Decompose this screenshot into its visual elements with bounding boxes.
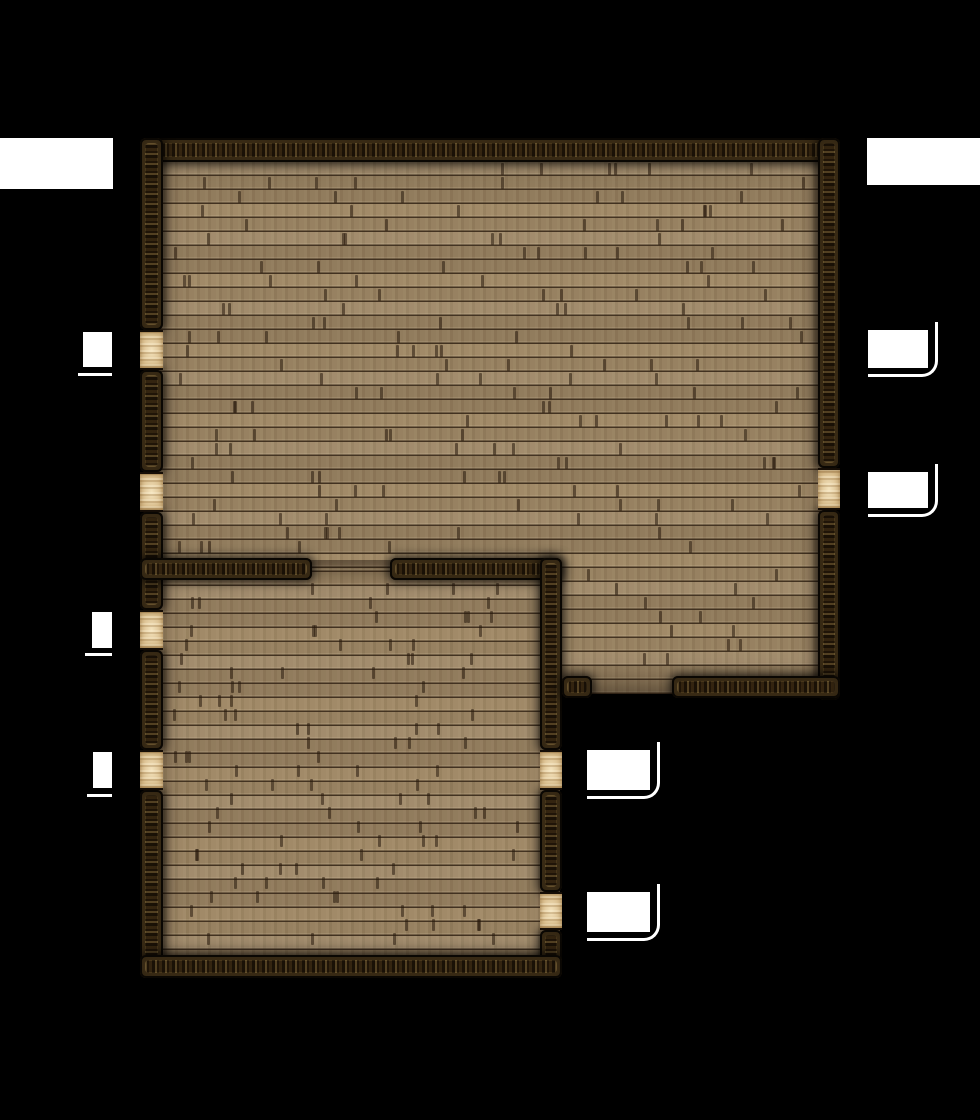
plank-seam (564, 303, 567, 315)
plank-seam (422, 835, 425, 847)
plank-seam (775, 401, 778, 413)
plank-seam (380, 387, 383, 399)
plank-seam (215, 443, 218, 455)
plank-seam (796, 387, 799, 399)
plank-seam (307, 737, 310, 749)
plank-seam (323, 317, 326, 329)
plank-seam (411, 653, 414, 665)
plank-seam (452, 583, 455, 595)
plank-seam (635, 289, 638, 301)
plank-seam (407, 653, 410, 665)
plank-seam (207, 933, 210, 945)
plank-seam (281, 667, 284, 679)
plank-seam (399, 793, 402, 805)
plank-seam (432, 919, 435, 931)
plank-seam (537, 247, 540, 259)
plank-seam (191, 597, 194, 609)
plank-seam (513, 387, 516, 399)
plank-seam (260, 261, 263, 273)
plank-seam (490, 611, 493, 623)
plank-seam (455, 443, 458, 455)
plank-seam (357, 821, 360, 833)
plank-seam (174, 751, 177, 763)
plank-seam (265, 877, 268, 889)
plank-seam (280, 359, 283, 371)
plank-seam (734, 583, 737, 595)
plank-seam (295, 863, 298, 875)
plank-seam (493, 443, 496, 455)
plank-seam (342, 303, 345, 315)
plank-seam (577, 513, 580, 525)
south-wall-west-room (140, 955, 562, 978)
west-wall-segment-1 (140, 138, 163, 330)
plank-seam (318, 471, 321, 483)
plank-seam (385, 219, 388, 231)
plank-seam (523, 247, 526, 259)
plank-seam (732, 625, 735, 637)
plank-seam (470, 653, 473, 665)
plank-seam (615, 583, 618, 595)
plank-seam (320, 373, 323, 385)
plank-seam (218, 695, 221, 707)
plank-seam (542, 289, 545, 301)
plank-seam (419, 821, 422, 833)
plank-seam (405, 919, 408, 931)
plank-seam (188, 751, 191, 763)
plank-seam (222, 303, 225, 315)
plank-seam (665, 415, 668, 427)
plank-seam (241, 863, 244, 875)
plank-seam (296, 723, 299, 735)
plank-seam (378, 835, 381, 847)
plank-seam (356, 765, 359, 777)
window-east-1-frame-line (868, 322, 938, 377)
plank-seam (188, 275, 191, 287)
south-wall-east (672, 676, 840, 698)
inner-vertical-wall-segment-1 (540, 558, 562, 750)
plank-seam (471, 709, 474, 721)
plank-seam (487, 597, 490, 609)
plank-seam (253, 429, 256, 441)
plank-seam (655, 513, 658, 525)
plank-seam (393, 933, 396, 945)
plank-seam (321, 793, 324, 805)
plank-seam (322, 877, 325, 889)
plank-seam (621, 191, 624, 203)
plank-seam (318, 485, 321, 497)
plank-seam (180, 653, 183, 665)
plank-seam (659, 611, 662, 623)
plank-seam (565, 457, 568, 469)
plank-seam (457, 527, 460, 539)
plank-seam (693, 387, 696, 399)
plank-seam (596, 191, 599, 203)
plank-seam (396, 345, 399, 357)
window-west-3 (93, 752, 112, 788)
plank-seam (312, 317, 315, 329)
plank-seam (215, 429, 218, 441)
plank-seam (462, 667, 465, 679)
plank-seam (280, 835, 283, 847)
plank-seam (178, 681, 181, 693)
plank-seam (389, 639, 392, 651)
plank-seam (650, 359, 653, 371)
plank-seam (360, 849, 363, 861)
plank-seam (587, 569, 590, 581)
plank-seam (752, 261, 755, 273)
plank-seam (338, 527, 341, 539)
plank-seam (279, 863, 282, 875)
plank-seam (436, 765, 439, 777)
plank-seam (548, 401, 551, 413)
plank-seam (764, 289, 767, 301)
plank-seam (711, 247, 714, 259)
plank-seam (657, 499, 660, 511)
plank-seam (750, 163, 753, 175)
plank-seam (540, 163, 543, 175)
plank-seam (355, 275, 358, 287)
plank-seam (408, 737, 411, 749)
plank-seam (190, 625, 193, 637)
plank-seam (766, 513, 769, 525)
plank-seam (314, 625, 317, 637)
plank-seam (686, 261, 689, 273)
plank-seam (271, 779, 274, 791)
window-inner-2-frame-line (587, 884, 660, 941)
east-door[interactable] (818, 468, 840, 510)
plank-seam (789, 317, 792, 329)
east-wall-segment-1 (818, 138, 840, 468)
plank-seam (802, 177, 805, 189)
plank-seam (210, 891, 213, 903)
plank-seam (307, 723, 310, 735)
battle-map-canvas[interactable] (0, 0, 980, 1120)
plank-seam (442, 261, 445, 273)
plank-seam (173, 709, 176, 721)
plank-seam (512, 443, 515, 455)
plank-seam (186, 345, 189, 357)
plank-seam (251, 401, 254, 413)
plank-seam (325, 513, 328, 525)
plank-seam (700, 261, 703, 273)
plank-seam (614, 163, 617, 175)
inner-wall-west-segment (140, 558, 312, 580)
plank-seam (727, 639, 730, 651)
plank-seam (437, 723, 440, 735)
side-room-floor (150, 560, 560, 970)
plank-seam (178, 541, 181, 553)
plank-seam (216, 807, 219, 819)
plank-seam (720, 415, 723, 427)
plank-seam (205, 779, 208, 791)
plank-seam (401, 905, 404, 917)
plank-seam (195, 849, 198, 861)
plank-seam (412, 639, 415, 651)
plank-seam (435, 835, 438, 847)
plank-seam (378, 289, 381, 301)
window-inner-1-frame-line (587, 742, 660, 799)
plank-seam (315, 177, 318, 189)
plank-seam (350, 205, 353, 217)
plank-seam (697, 415, 700, 427)
plank-seam (415, 723, 418, 735)
plank-seam (557, 457, 560, 469)
plank-seam (584, 247, 587, 259)
plank-seam (474, 807, 477, 819)
plank-seam (234, 709, 237, 721)
plank-seam (394, 737, 397, 749)
plank-seam (579, 415, 582, 427)
plank-seam (231, 471, 234, 483)
plank-seam (463, 905, 466, 917)
plank-seam (238, 191, 241, 203)
window-northeast (867, 138, 980, 185)
plank-seam (185, 639, 188, 651)
plank-seam (265, 331, 268, 343)
plank-seam (298, 541, 301, 553)
plank-seam (179, 373, 182, 385)
plank-seam (334, 191, 337, 203)
plank-seam (311, 583, 314, 595)
inner-wall-east-segment (390, 558, 562, 580)
plank-seam (375, 611, 378, 623)
window-west-1 (83, 332, 112, 367)
plank-seam (234, 877, 237, 889)
plank-seam (354, 485, 357, 497)
plank-seam (416, 779, 419, 791)
plank-seam (682, 303, 685, 315)
plank-seam (231, 681, 234, 693)
plank-seam (213, 499, 216, 511)
plank-seam (501, 177, 504, 189)
plank-seam (372, 667, 375, 679)
plank-seam (344, 233, 347, 245)
plank-seam (655, 373, 658, 385)
plank-seam (658, 527, 661, 539)
plank-seam (445, 359, 448, 371)
window-west-2 (92, 612, 112, 648)
plank-seam (616, 485, 619, 497)
plank-seam (478, 919, 481, 931)
plank-seam (542, 401, 545, 413)
plank-seam (217, 331, 220, 343)
plank-seam (461, 429, 464, 441)
plank-seam (233, 401, 236, 413)
plank-seam (619, 443, 622, 455)
plank-seam (781, 219, 784, 231)
plank-seam (560, 289, 563, 301)
plank-seam (183, 275, 186, 287)
plank-seam (752, 597, 755, 609)
west-door-3[interactable] (140, 610, 163, 650)
plank-seam (800, 331, 803, 343)
plank-seam (208, 541, 211, 553)
plank-seam (689, 541, 692, 553)
window-west-1-sill-line (78, 373, 112, 376)
plank-seam (517, 499, 520, 511)
plank-seam (699, 611, 702, 623)
plank-seam (311, 471, 314, 483)
plank-seam (339, 639, 342, 651)
plank-seam (336, 891, 339, 903)
inner-door-1[interactable] (540, 750, 562, 790)
plank-seam (709, 205, 712, 217)
plank-seam (481, 275, 484, 287)
plank-seam (499, 233, 502, 245)
plank-seam (658, 233, 661, 245)
plank-seam (740, 191, 743, 203)
plank-seam (744, 429, 747, 441)
plank-seam (549, 387, 552, 399)
plank-seam (515, 331, 518, 343)
plank-seam (355, 387, 358, 399)
plank-seam (386, 583, 389, 595)
plank-seam (507, 359, 510, 371)
plank-seam (388, 541, 391, 553)
east-wall-segment-2 (818, 510, 840, 700)
plank-seam (192, 513, 195, 525)
plank-seam (208, 821, 211, 833)
plank-seam (328, 807, 331, 819)
plank-seam (656, 219, 659, 231)
plank-seam (224, 709, 227, 721)
plank-seam (696, 359, 699, 371)
plank-seam (775, 569, 778, 581)
plank-seam (324, 289, 327, 301)
plank-seam (200, 541, 203, 553)
plank-seam (467, 611, 470, 623)
plank-seam (741, 317, 744, 329)
plank-seam (670, 625, 673, 637)
plank-seam (389, 429, 392, 441)
plank-seam (286, 527, 289, 539)
plank-seam (595, 415, 598, 427)
plank-seam (570, 345, 573, 357)
window-northwest (0, 138, 113, 189)
plank-seam (496, 583, 499, 595)
plank-seam (516, 821, 519, 833)
plank-seam (463, 471, 466, 483)
plank-seam (317, 261, 320, 273)
west-wall-segment-5 (140, 790, 163, 978)
plank-seam (644, 597, 647, 609)
plank-seam (666, 653, 669, 665)
plank-seam (297, 765, 300, 777)
inner-door-2[interactable] (540, 892, 562, 930)
plank-seam (491, 233, 494, 245)
plank-seam (230, 695, 233, 707)
south-wall-stub (562, 676, 592, 698)
plank-seam (569, 373, 572, 385)
plank-seam (573, 485, 576, 497)
plank-seam (731, 499, 734, 511)
plank-seam (333, 891, 336, 903)
plank-seam (483, 807, 486, 819)
plank-seam (185, 751, 188, 763)
plank-seam (382, 485, 385, 497)
plank-seam (190, 905, 193, 917)
plank-seam (311, 933, 314, 945)
plank-seam (492, 933, 495, 945)
plank-seam (707, 275, 710, 287)
plank-seam (324, 527, 327, 539)
plank-seam (279, 513, 282, 525)
plank-seam (376, 877, 379, 889)
plank-seam (457, 205, 460, 217)
plank-seam (415, 695, 418, 707)
plank-seam (436, 373, 439, 385)
plank-seam (230, 793, 233, 805)
plank-seam (198, 597, 201, 609)
west-door-4[interactable] (140, 750, 163, 790)
plank-seam (392, 863, 395, 875)
plank-seam (256, 891, 259, 903)
plank-seam (479, 373, 482, 385)
plank-seam (229, 443, 232, 455)
plank-seam (207, 233, 210, 245)
plank-seam (431, 905, 434, 917)
plank-seam (335, 499, 338, 511)
window-east-2-frame-line (868, 464, 938, 517)
plank-seam (317, 751, 320, 763)
plank-seam (385, 429, 388, 441)
plank-seam (681, 219, 684, 231)
plank-seam (643, 653, 646, 665)
plank-seam (479, 625, 482, 637)
plank-seam (369, 597, 372, 609)
plank-seam (687, 317, 690, 329)
plank-seam (201, 205, 204, 217)
plank-seam (440, 345, 443, 357)
plank-seam (498, 471, 501, 483)
plank-seam (466, 415, 469, 427)
plank-seam (354, 177, 357, 189)
plank-seam (619, 499, 622, 511)
inner-vertical-wall-segment-2 (540, 790, 562, 892)
plank-seam (704, 205, 707, 217)
plank-seam (427, 793, 430, 805)
plank-seam (422, 681, 425, 693)
plank-seam (188, 331, 191, 343)
west-door-2[interactable] (140, 472, 163, 512)
plank-seam (798, 485, 801, 497)
plank-seam (238, 681, 241, 693)
plank-seam (412, 345, 415, 357)
plank-seam (174, 247, 177, 259)
plank-seam (583, 219, 586, 231)
plank-seam (269, 275, 272, 287)
plank-seam (230, 667, 233, 679)
plank-seam (501, 163, 504, 175)
plank-seam (401, 191, 404, 203)
plank-seam (203, 177, 206, 189)
plank-seam (648, 163, 651, 175)
plank-seam (603, 359, 606, 371)
plank-seam (245, 219, 248, 231)
plank-seam (228, 303, 231, 315)
plank-seam (616, 247, 619, 259)
west-door-1[interactable] (140, 330, 163, 370)
plank-seam (763, 457, 766, 469)
west-wall-segment-2 (140, 370, 163, 472)
plank-seam (199, 695, 202, 707)
plank-seam (503, 471, 506, 483)
plank-seam (608, 163, 611, 175)
plank-seam (235, 765, 238, 777)
window-west-2-sill-line (85, 653, 112, 656)
plank-seam (512, 849, 515, 861)
plank-seam (739, 639, 742, 651)
